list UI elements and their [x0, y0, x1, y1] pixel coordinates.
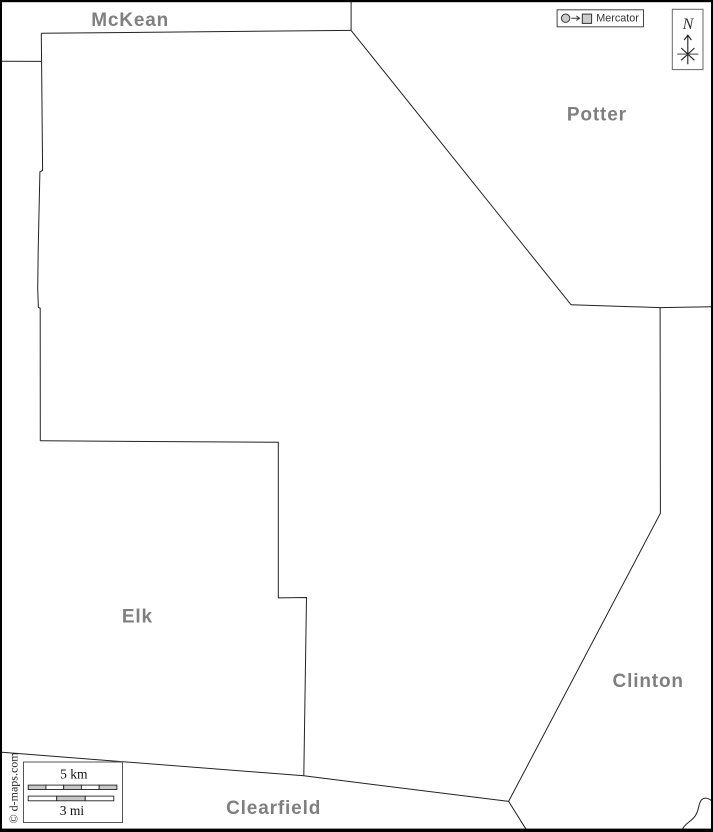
svg-text:Potter: Potter	[567, 105, 627, 126]
svg-text:McKean: McKean	[91, 10, 169, 31]
svg-text:Mercator: Mercator	[596, 13, 639, 25]
svg-text:5 km: 5 km	[60, 766, 88, 781]
svg-text:© d-maps.com: © d-maps.com	[7, 752, 21, 824]
svg-text:Clinton: Clinton	[613, 671, 684, 692]
svg-text:3 mi: 3 mi	[60, 803, 85, 818]
svg-text:Clearfield: Clearfield	[226, 798, 321, 819]
svg-text:N: N	[682, 16, 695, 33]
svg-text:Elk: Elk	[122, 606, 153, 627]
